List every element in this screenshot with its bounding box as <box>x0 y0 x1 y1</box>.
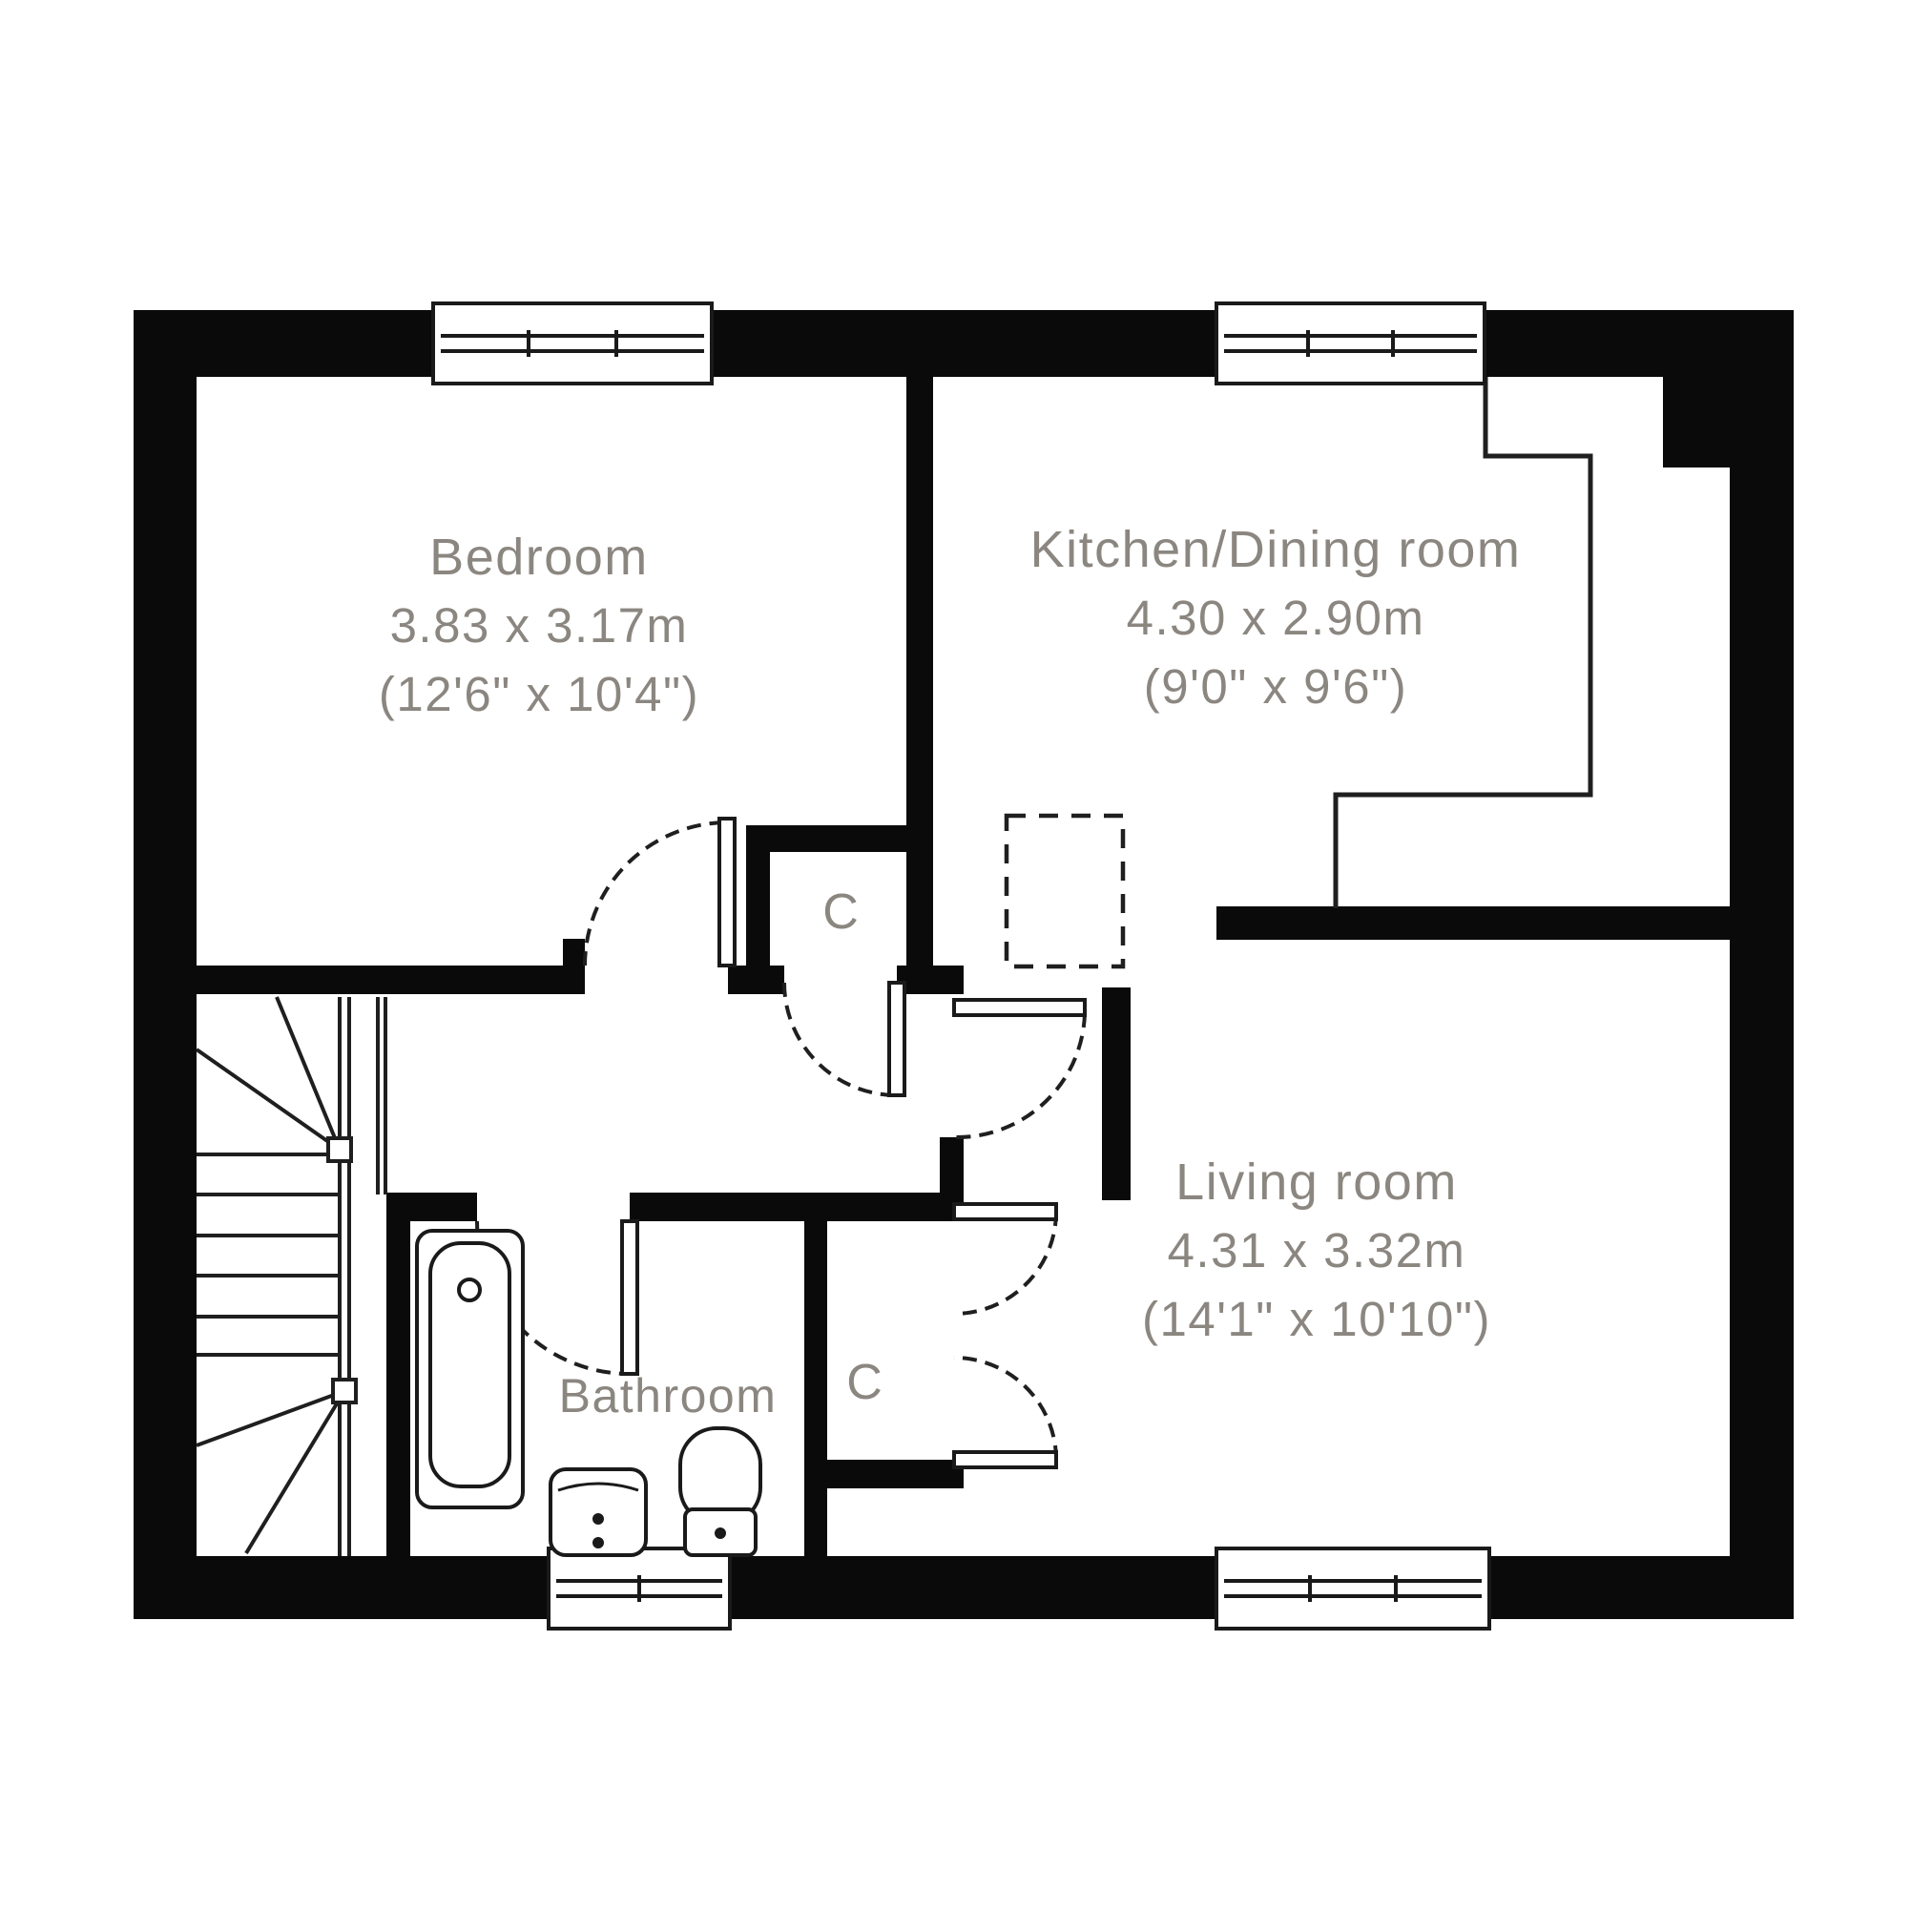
stairs <box>197 997 385 1556</box>
newel-post <box>328 1138 351 1161</box>
wall-step <box>1663 377 1734 467</box>
room-name: Kitchen/Dining room <box>1030 515 1522 584</box>
room-size-metric: 4.30 x 2.90m <box>1030 584 1522 653</box>
bathtub <box>417 1231 523 1507</box>
newel-post <box>333 1380 356 1402</box>
room-name: Living room <box>1142 1148 1491 1216</box>
living-room-label: Living room 4.31 x 3.32m (14'1" x 10'10"… <box>1142 1148 1491 1354</box>
kitchen-window <box>1216 303 1485 384</box>
bathroom-left-wall <box>386 1193 410 1556</box>
floor-plan-drawing <box>0 0 1932 1932</box>
bedroom-door <box>585 819 735 966</box>
living-room-left-wall <box>1102 987 1131 1200</box>
bedroom-kitchen-partition <box>906 377 933 825</box>
room-size-imperial: (14'1" x 10'10") <box>1142 1285 1491 1354</box>
floor-plan: Bedroom 3.83 x 3.17m (12'6" x 10'4") Kit… <box>0 0 1932 1932</box>
bathroom-window <box>549 1548 730 1629</box>
bedroom-label: Bedroom 3.83 x 3.17m (12'6" x 10'4") <box>379 523 699 729</box>
room-name: Bedroom <box>379 523 699 592</box>
room-size-metric: 3.83 x 3.17m <box>379 592 699 660</box>
appliance-dashed-outline <box>1007 816 1123 966</box>
kitchen-label: Kitchen/Dining room 4.30 x 2.90m (9'0" x… <box>1030 515 1522 721</box>
room-size-metric: 4.31 x 3.32m <box>1142 1216 1491 1285</box>
closet-label-2: C <box>846 1358 883 1407</box>
basin <box>551 1469 646 1555</box>
room-size-imperial: (9'0" x 9'6") <box>1030 653 1522 721</box>
closet-label-1: C <box>822 887 859 937</box>
bathroom-closet-divider <box>804 1221 827 1556</box>
closet-doors <box>954 1204 1056 1467</box>
room-size-imperial: (12'6" x 10'4") <box>379 660 699 729</box>
room-name: Bathroom <box>559 1371 778 1421</box>
toilet <box>680 1428 760 1555</box>
bedroom-bottom-wall <box>197 966 585 994</box>
kitchen-door <box>784 983 904 1095</box>
bathroom-label: Bathroom <box>559 1371 778 1421</box>
bedroom-window <box>433 303 712 384</box>
living-room-window <box>1216 1548 1489 1629</box>
hall-door <box>954 1000 1085 1137</box>
kitchen-living-divider-wall <box>1216 906 1730 940</box>
exterior-walls <box>134 310 1794 1619</box>
